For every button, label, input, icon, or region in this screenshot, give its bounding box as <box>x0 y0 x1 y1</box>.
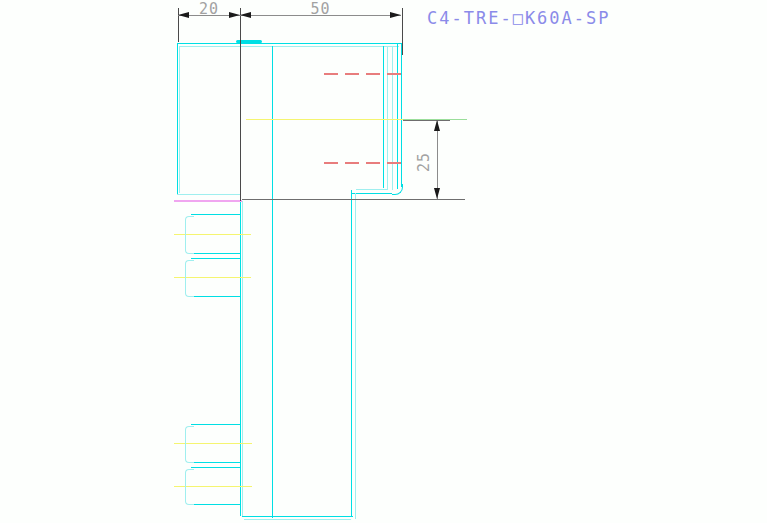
dim25-arrow-up <box>434 120 440 131</box>
dim20-arrow-left <box>178 12 189 18</box>
column-right-edge-2 <box>355 193 356 519</box>
part-top-inner-edge <box>179 46 399 47</box>
slot-a-top <box>191 214 240 215</box>
slot-c-cap <box>185 426 194 463</box>
part-top-outer-edge <box>177 43 401 44</box>
dim50-arrow-right <box>390 12 401 18</box>
part-bottom-left-edge <box>177 194 240 195</box>
dim25-arrow-down <box>434 188 440 199</box>
slot-b-top <box>191 258 240 259</box>
slot-a-bottom <box>191 253 240 254</box>
slot-a-cap <box>185 216 194 254</box>
right-wall-line-2 <box>387 46 388 190</box>
dim-label-25: 25 <box>416 142 432 182</box>
dim25-extension-top <box>403 120 450 121</box>
dim-extension-middle <box>240 8 241 201</box>
column-left-edge-2 <box>242 201 243 516</box>
dim-top-line <box>178 15 401 16</box>
cad-canvas[interactable]: 20 50 25 C4-TRE-□K60A-SP <box>0 0 767 523</box>
magenta-edge-line <box>174 200 242 202</box>
hidden-line-lower <box>324 162 404 164</box>
slot-c-bottom <box>191 462 240 463</box>
gray-datum-line <box>242 199 465 200</box>
column-bottom-edge <box>242 516 353 517</box>
centerline-main-yellow <box>246 119 403 120</box>
slot-c-top <box>191 424 240 425</box>
right-wall-line-4 <box>397 43 398 189</box>
dim50-extension-right <box>402 8 403 55</box>
right-wall-line-1 <box>383 46 384 188</box>
slot-b-cap <box>185 260 194 297</box>
slot-d-bottom <box>191 504 240 505</box>
hidden-line-upper <box>324 73 404 75</box>
column-right-edge <box>351 190 352 516</box>
slot-d-cap <box>185 469 194 505</box>
right-wall-line-5 <box>401 43 402 187</box>
column-bottom-edge-2 <box>244 519 351 520</box>
part-mid-vertical-edge <box>272 46 273 518</box>
part-left-outer-edge <box>177 43 178 194</box>
right-wall-line-3 <box>392 46 393 190</box>
dim50-arrow-left <box>240 12 251 18</box>
wall-bottom-corner <box>392 184 403 195</box>
slot-b-bottom <box>191 296 240 297</box>
part-left-inner-edge <box>179 46 180 193</box>
dim20-arrow-right <box>229 12 240 18</box>
step-edge-bright <box>352 193 392 194</box>
slot-d-top <box>191 467 240 468</box>
step-edge-light <box>356 189 388 190</box>
column-left-edge <box>240 201 241 516</box>
drawing-title: C4-TRE-□K60A-SP <box>427 9 611 28</box>
